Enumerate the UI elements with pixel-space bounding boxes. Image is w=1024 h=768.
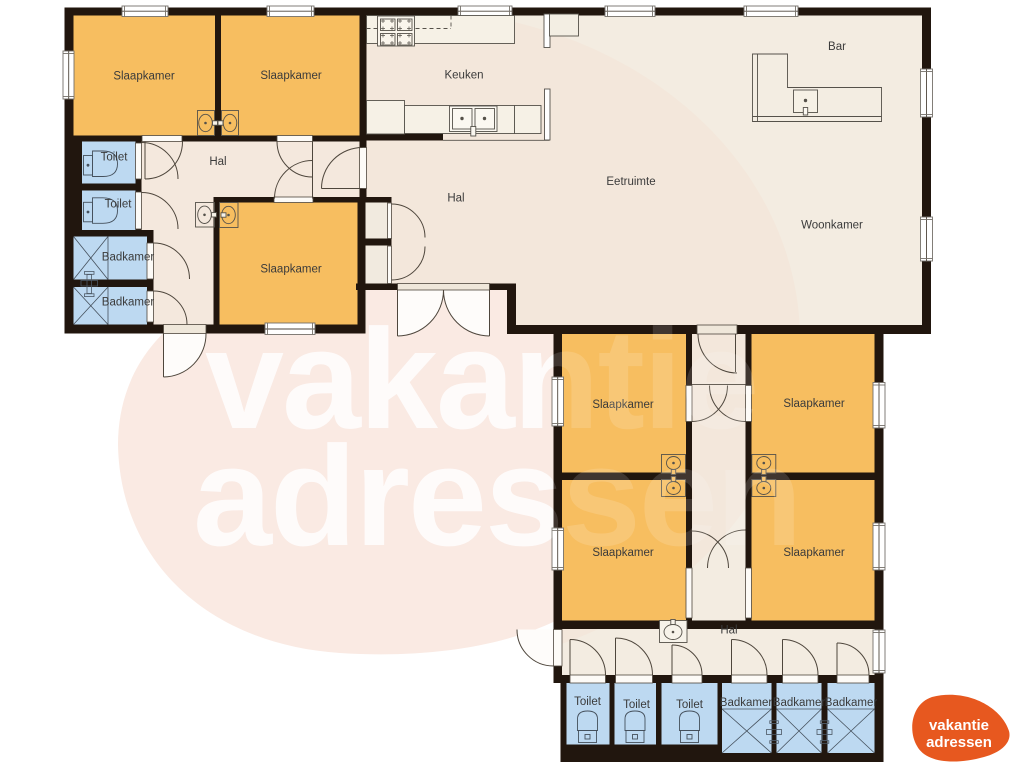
svg-text:Toilet: Toilet	[676, 699, 704, 711]
svg-text:Badkamer: Badkamer	[773, 697, 826, 709]
svg-text:Slaapkamer: Slaapkamer	[260, 264, 322, 276]
svg-text:Keuken: Keuken	[444, 70, 483, 82]
svg-text:Hal: Hal	[209, 156, 226, 168]
svg-text:vakantie: vakantie	[929, 717, 989, 734]
svg-text:Badkamer: Badkamer	[825, 697, 878, 709]
svg-text:Woonkamer: Woonkamer	[801, 220, 863, 232]
svg-text:Badkamer: Badkamer	[720, 697, 773, 709]
svg-text:Toilet: Toilet	[101, 152, 129, 164]
svg-text:Hal: Hal	[720, 625, 737, 637]
svg-text:adressen: adressen	[193, 417, 801, 576]
svg-text:Toilet: Toilet	[623, 699, 651, 711]
svg-text:Badkamer: Badkamer	[102, 252, 155, 264]
svg-text:Badkamer: Badkamer	[102, 297, 155, 309]
svg-text:adressen: adressen	[926, 734, 992, 751]
svg-text:Toilet: Toilet	[574, 696, 602, 708]
svg-text:Bar: Bar	[828, 41, 846, 53]
svg-text:Slaapkamer: Slaapkamer	[113, 71, 175, 83]
svg-text:Slaapkamer: Slaapkamer	[260, 70, 322, 82]
svg-text:Slaapkamer: Slaapkamer	[783, 398, 845, 410]
svg-text:Hal: Hal	[447, 193, 464, 205]
svg-text:Eetruimte: Eetruimte	[606, 176, 655, 188]
svg-text:Toilet: Toilet	[105, 199, 133, 211]
